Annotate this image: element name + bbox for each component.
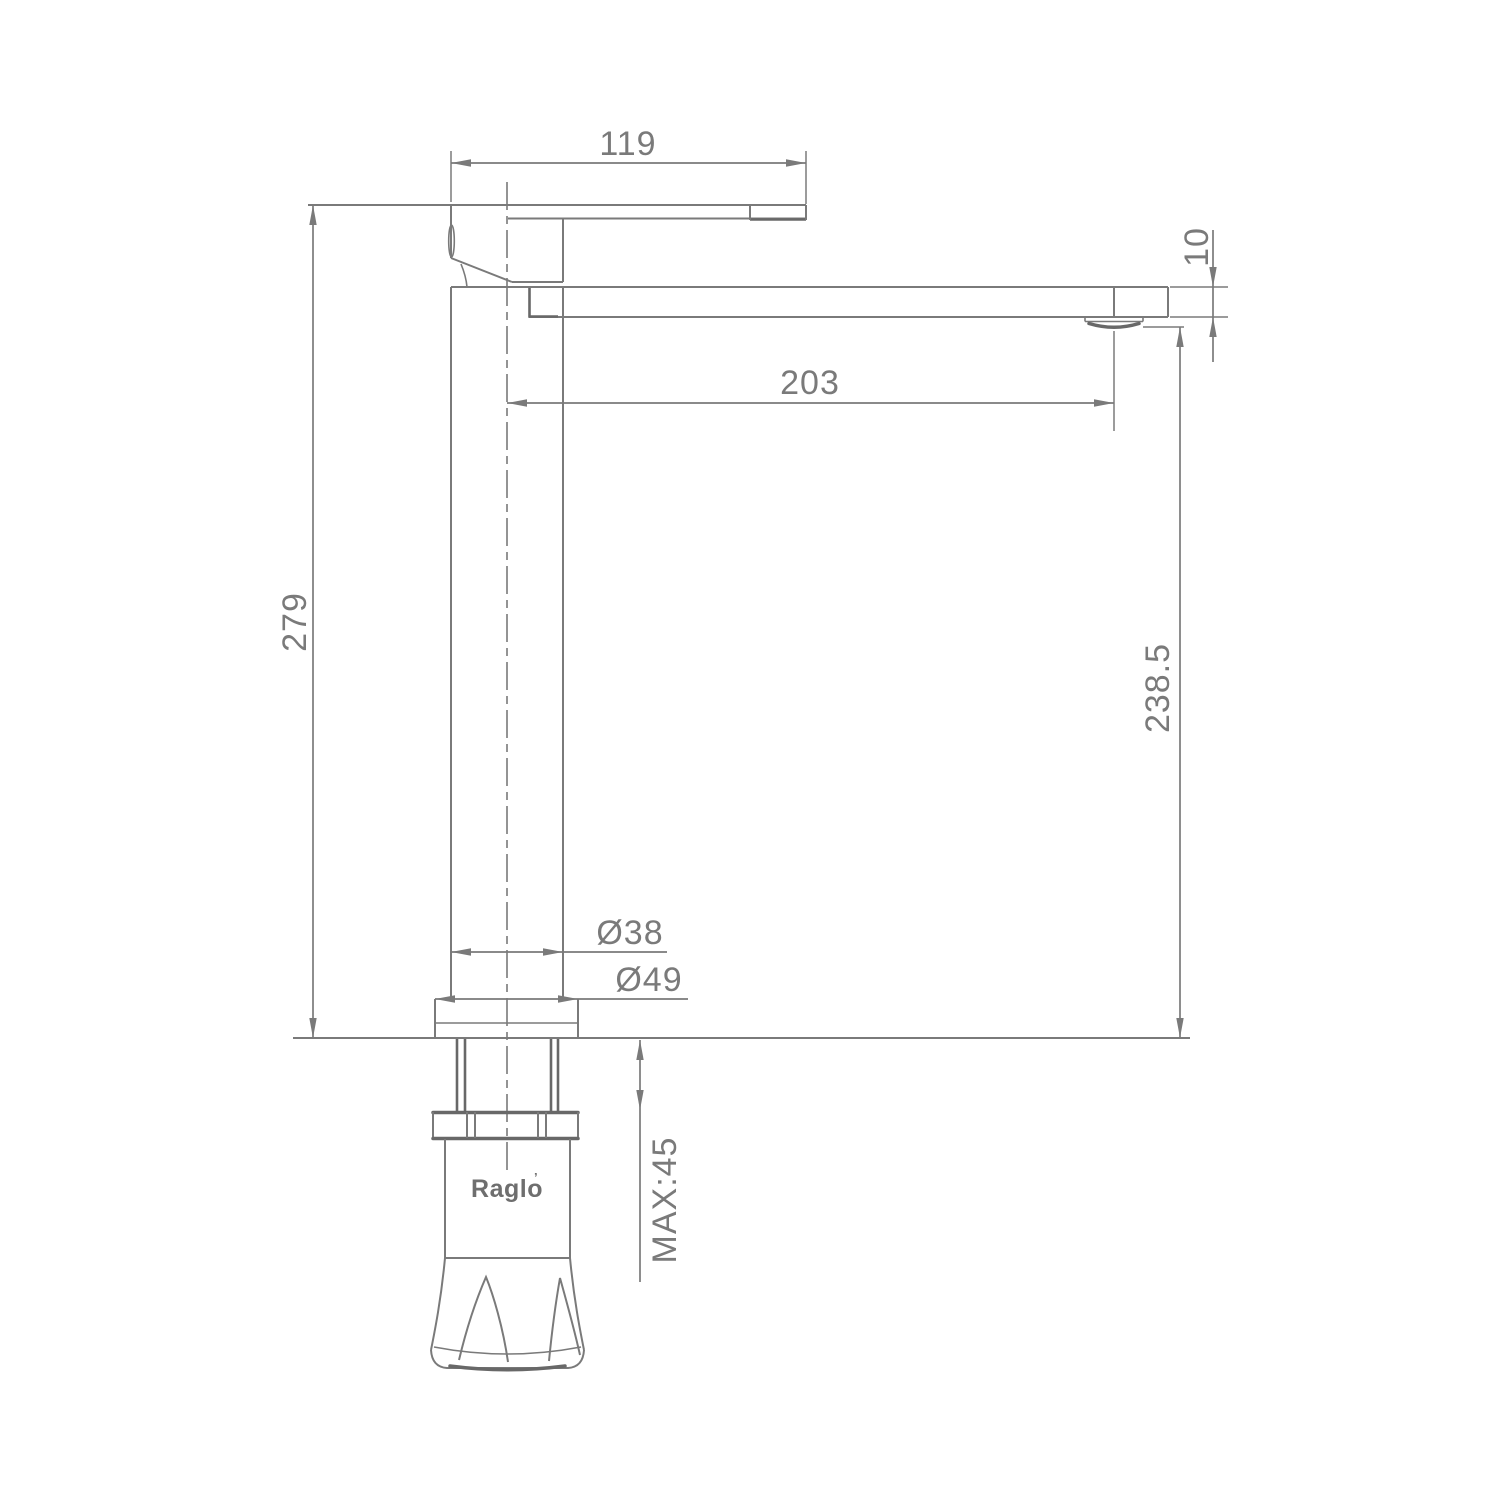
faucet-dimension-drawing: Raglo ’ 119 10 203 279: [0, 0, 1500, 1500]
dim-body-diameter-label: Ø38: [596, 914, 663, 952]
brand-label: Raglo: [471, 1175, 543, 1203]
dim-spout-end-height-label: 10: [1178, 227, 1216, 267]
technical-drawing-canvas: Raglo ’ 119 10 203 279: [0, 0, 1500, 1500]
dim-handle-length-label: 119: [599, 125, 656, 163]
dimension-overall-height: 279: [276, 205, 317, 1038]
dimension-handle-length: 119: [451, 125, 806, 204]
dimension-spout-reach: 203: [507, 331, 1114, 431]
faucet-spout-outline: [529, 287, 1168, 317]
dim-max-deck-thickness-label: MAX:45: [646, 1137, 684, 1264]
dimension-body-diameter: Ø38: [451, 914, 667, 956]
brand-logo: Raglo ’: [471, 1170, 543, 1203]
dimension-max-deck-thickness: MAX:45: [636, 1040, 684, 1282]
dimension-base-diameter: Ø49: [435, 961, 688, 1003]
dim-spout-reach-label: 203: [780, 364, 840, 402]
dim-overall-height-label: 279: [276, 592, 314, 652]
mounting-hex-nut: [433, 1112, 578, 1139]
dim-base-diameter-label: Ø49: [615, 961, 682, 999]
aerator: [1085, 317, 1143, 327]
dimension-deck-to-spout: 238.5: [1139, 327, 1184, 1038]
dim-deck-to-spout-label: 238.5: [1139, 643, 1177, 733]
lock-nut-grip-flare: [431, 1258, 584, 1370]
faucet-handle-outline: [308, 205, 806, 287]
brand-trademark: ’: [534, 1170, 538, 1185]
